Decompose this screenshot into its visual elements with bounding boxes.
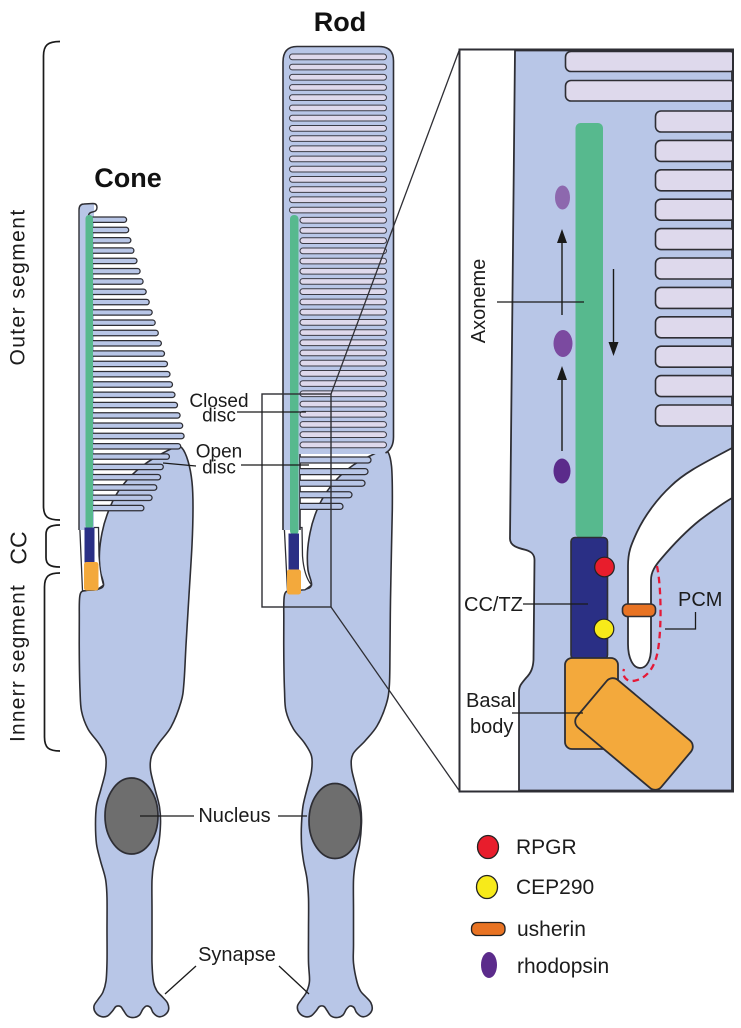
svg-text:Basal: Basal	[466, 690, 516, 712]
svg-text:Rod: Rod	[314, 7, 366, 37]
svg-text:RPGR: RPGR	[516, 836, 577, 859]
svg-text:Innerr segment: Innerr segment	[7, 584, 30, 742]
svg-text:CEP290: CEP290	[516, 876, 594, 899]
svg-text:Cone: Cone	[94, 163, 162, 193]
svg-text:CC/TZ: CC/TZ	[464, 594, 523, 616]
svg-text:CC: CC	[6, 531, 32, 564]
svg-text:Synapse: Synapse	[198, 944, 276, 966]
svg-text:Outer segment: Outer segment	[7, 208, 30, 365]
svg-text:body: body	[470, 716, 513, 738]
svg-text:usherin: usherin	[517, 918, 586, 941]
svg-text:rhodopsin: rhodopsin	[517, 955, 609, 978]
svg-text:PCM: PCM	[678, 589, 722, 611]
svg-text:disc: disc	[202, 406, 236, 427]
svg-text:Axoneme: Axoneme	[468, 259, 490, 344]
svg-text:Nucleus: Nucleus	[198, 805, 270, 827]
svg-text:disc: disc	[202, 458, 236, 479]
